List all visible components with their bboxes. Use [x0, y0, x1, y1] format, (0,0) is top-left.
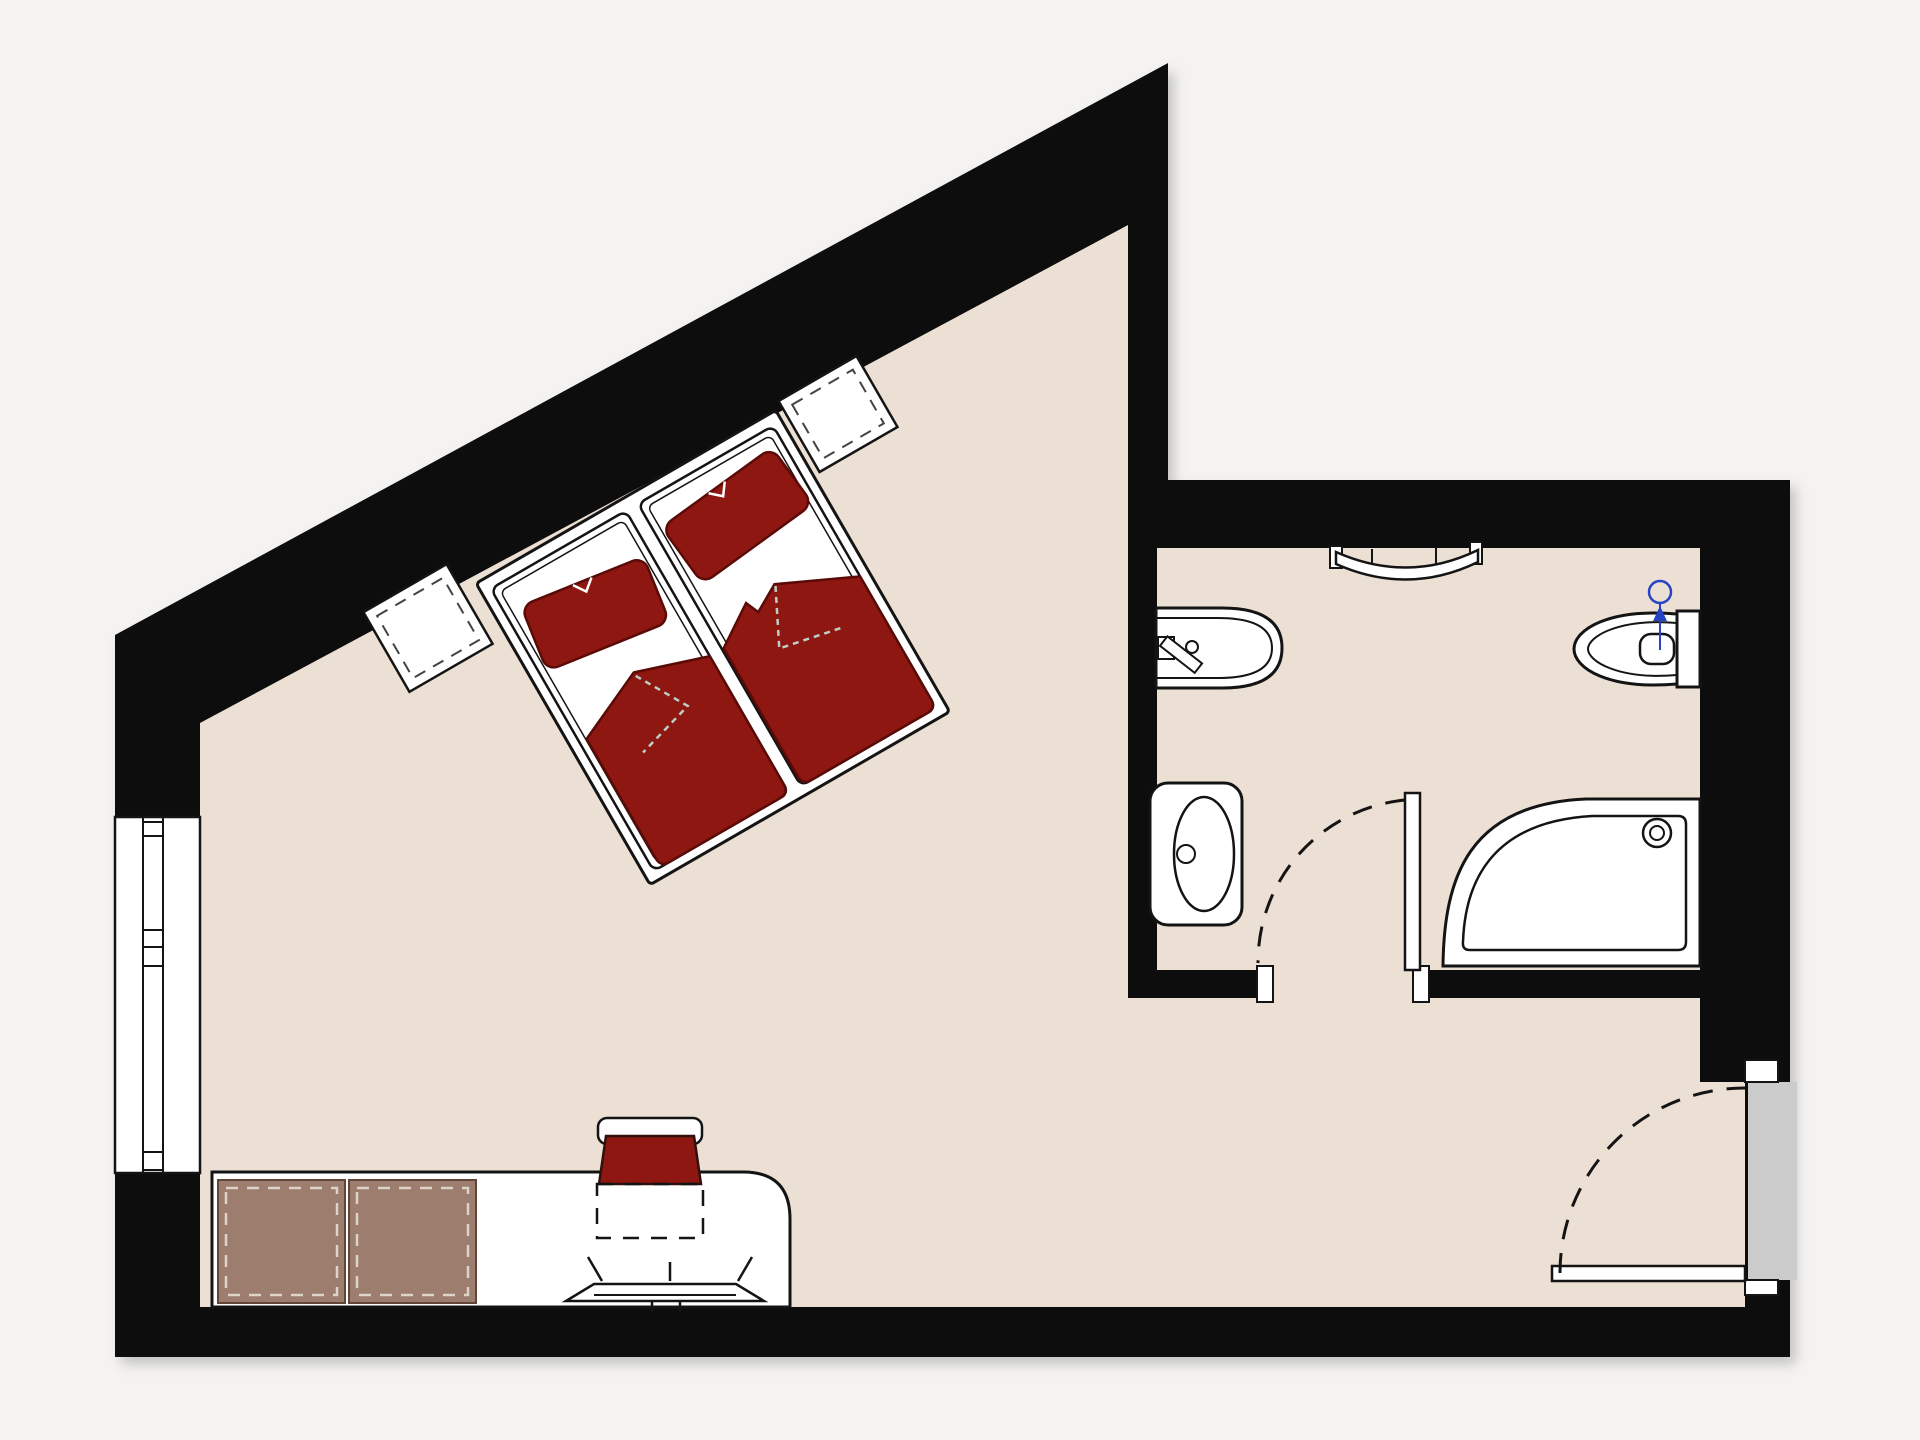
entry-door-jamb: [1745, 1280, 1778, 1295]
window-transom: [143, 930, 163, 947]
sideboard-cabinet: [218, 1180, 345, 1303]
bathroom-door-leaf: [1405, 793, 1420, 970]
shower-drain-inner: [1650, 826, 1664, 840]
washbasin: [1150, 783, 1242, 925]
bathroom-door-opening: [1273, 966, 1413, 1002]
bathroom-door-jamb: [1257, 966, 1273, 1002]
window-transom: [143, 822, 163, 836]
toilet-water: [1640, 634, 1674, 664]
window-transom: [143, 1152, 163, 1170]
window-frame: [115, 817, 200, 1173]
entry-door-threshold-band: [1748, 1082, 1797, 1280]
washbasin-drain: [1177, 845, 1195, 863]
entry-door-leaf: [1552, 1266, 1745, 1281]
floor-plan-page: [0, 0, 1920, 1440]
chair-seat: [599, 1136, 701, 1184]
bidet-drain: [1186, 641, 1198, 653]
sideboard-cabinet: [349, 1180, 476, 1303]
window-transom: [143, 947, 163, 966]
entry-door-jamb: [1745, 1060, 1778, 1082]
bathroom-door-jamb: [1413, 966, 1429, 1002]
toilet-cistern: [1677, 611, 1700, 687]
window-left: [115, 817, 200, 1173]
bidet: [1156, 608, 1282, 688]
floor-plan-canvas: [0, 0, 1920, 1440]
tv-body: [566, 1284, 764, 1301]
entry-floor: [1128, 998, 1745, 1307]
